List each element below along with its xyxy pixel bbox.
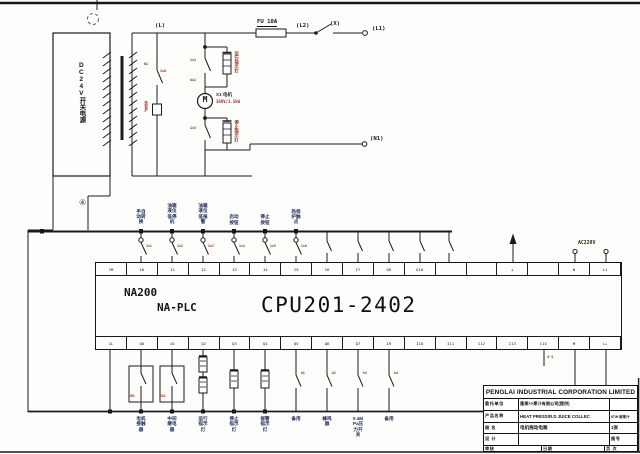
contact-tag-1x2: 1x2: [190, 59, 196, 63]
input-label: 停止按钮: [254, 214, 276, 225]
marker-4: ④: [79, 199, 86, 207]
terminal-cell: [467, 263, 498, 275]
plc-cpu-model: CPU201-2402: [261, 294, 417, 316]
drawing-name-label: 图 名: [484, 423, 518, 434]
product-extra: 6T/H 鲜果汁: [609, 411, 637, 422]
terminal-cell: Q7: [343, 337, 374, 349]
terminal-cell: L1: [590, 263, 621, 275]
terminal-cell: I13: [497, 337, 528, 349]
terminal-cell: Q0: [127, 337, 158, 349]
terminal-cell: Q4: [250, 337, 281, 349]
output-wire-tag: b3: [363, 371, 367, 375]
terminal-cell: N: [559, 263, 590, 275]
input-wire-tag: 1x2: [177, 244, 183, 248]
product-label: 产品名称: [484, 411, 518, 422]
output-label: 报警指示灯: [254, 416, 276, 432]
page-label: 页 次: [604, 446, 637, 452]
terminal-cell: Q2: [189, 337, 220, 349]
company-name: PENGLAI INDUSTRIAL CORPORATION LIMITED: [484, 386, 637, 398]
terminal-cell: M: [559, 337, 590, 349]
output-wire-tag: b4: [394, 371, 398, 375]
terminal-cell: I0: [127, 263, 158, 275]
input-wire-tag: 1x3: [208, 244, 214, 248]
switch-label-x: (X): [330, 22, 340, 28]
motor-name: X1 电机: [216, 93, 232, 98]
terminal-cell: 1L: [96, 337, 127, 349]
input-wire-tag: 1x6: [301, 244, 307, 248]
client-value: 蓬莱××果汁有限公司(提供): [518, 399, 609, 410]
output-label: 电机接触器: [130, 416, 152, 432]
terminal-cell: Q9: [374, 263, 405, 275]
output-wire-tag: b2: [332, 371, 336, 375]
terminal-cell: Q10: [405, 263, 436, 275]
input-wire-tag: 1x1: [146, 244, 152, 248]
wire-label-l1: (L1): [372, 27, 385, 33]
drawing-name-value: 电机拖动电路: [518, 423, 609, 434]
input-wire-tag: 1x5: [270, 244, 276, 248]
output-label: 中间继电器: [161, 416, 183, 432]
terminal-cell: Q6: [312, 337, 343, 349]
input-label: 启动按钮: [223, 214, 245, 225]
input-label: 油箱液位低报警: [192, 203, 214, 225]
lamp-bottom-label: 停止指示灯: [234, 120, 239, 156]
contact-tag-1x0: 1x0: [160, 70, 166, 74]
plc-family: NA-PLC: [157, 302, 197, 314]
contact-tag-w1: W1: [144, 63, 148, 67]
terminal-cell: I2: [189, 263, 220, 275]
input-label: 热保护触点: [285, 209, 307, 225]
sheet-count: 1张: [609, 423, 637, 434]
output-label: 备用: [378, 416, 400, 421]
schematic-canvas: DC24V开关电源 ④ (L) FU 10A (L2) (X) (L1) (N1…: [0, 0, 640, 454]
input-wire-tag: 1x4: [239, 244, 245, 248]
terminal-cell: I12: [467, 337, 498, 349]
input-label: 油箱液位低停机: [161, 203, 183, 225]
protector-label: 热保护: [143, 101, 147, 119]
relay-tag: KM1: [129, 394, 135, 398]
contact-tag-1x3: 1x3: [190, 127, 196, 131]
terminal-cell: 1M: [96, 263, 127, 275]
title-block: PENGLAI INDUSTRIAL CORPORATION LIMITED 委…: [483, 385, 638, 452]
relay-tag: KA1: [160, 394, 166, 398]
terminal-cell: L+: [590, 337, 621, 349]
terminal-cell: Q5: [281, 337, 312, 349]
terminal-cell: I4: [250, 263, 281, 275]
wire-label-n1: (N1): [370, 137, 383, 143]
lamp-top-label: 运行指示灯: [234, 51, 239, 87]
plc-bottom-terminals: 1LQ0Q1Q2Q3Q4Q5Q6Q7I9I10I11I12I13I14ML+: [96, 336, 621, 349]
terminal-cell: ⊥: [497, 263, 528, 275]
terminal-cell: [436, 263, 467, 275]
output-label: 备用: [285, 416, 307, 421]
wire-label-l2: (L2): [296, 24, 309, 30]
terminal-cell: I10: [405, 337, 436, 349]
terminal-cell: [528, 263, 559, 275]
terminal-cell: I3: [220, 263, 251, 275]
terminal-cell: I6: [312, 263, 343, 275]
date-label: 日期: [541, 446, 604, 452]
wire-label-l: (L): [155, 24, 165, 30]
terminal-cell: I14: [528, 337, 559, 349]
terminal-cell: I11: [436, 337, 467, 349]
output-label: 0.4MPa压力开关: [347, 416, 369, 438]
fuse-label: FU 10A: [257, 20, 277, 27]
terminal-cell: I1: [158, 263, 189, 275]
terminal-cell: I9: [374, 337, 405, 349]
output-label: 蜂鸣器: [316, 416, 338, 427]
output-label: 运行指示灯: [192, 416, 214, 432]
checker-label: 审核: [484, 446, 541, 452]
plc-module: 1MI0I1I2I3I4I5I6I7Q9Q10⊥NL1 1LQ0Q1Q2Q3Q4…: [95, 262, 622, 350]
output-label: 停止指示灯: [223, 416, 245, 432]
output-wire-tag: b1: [301, 371, 305, 375]
drawing-no-label: 图号: [609, 434, 637, 445]
ac-voltage-label: AC220V: [578, 241, 595, 246]
terminal-cell: I5: [281, 263, 312, 275]
motor-rating: 380V/1.5kW: [216, 100, 240, 104]
input-label: 手自动转换: [130, 209, 152, 225]
designer-value: [518, 434, 609, 445]
plc-brand: NA200: [124, 287, 157, 299]
terminal-cell: Q3: [220, 337, 251, 349]
misc-tag: 4-3: [547, 356, 553, 360]
node-tag-ba1: ba1: [190, 79, 196, 83]
terminal-cell: I7: [343, 263, 374, 275]
product-value: HEAT PRESS/R.D JUICE COLLEC: [518, 411, 609, 422]
client-extra: [609, 399, 637, 410]
motor-symbol: M: [198, 96, 212, 104]
terminal-cell: Q1: [158, 337, 189, 349]
power-supply-label: DC24V开关电源: [77, 62, 84, 166]
plc-top-terminals: 1MI0I1I2I3I4I5I6I7Q9Q10⊥NL1: [96, 263, 621, 276]
designer-label: 设 计: [484, 434, 518, 445]
client-label: 委托单位: [484, 399, 518, 410]
